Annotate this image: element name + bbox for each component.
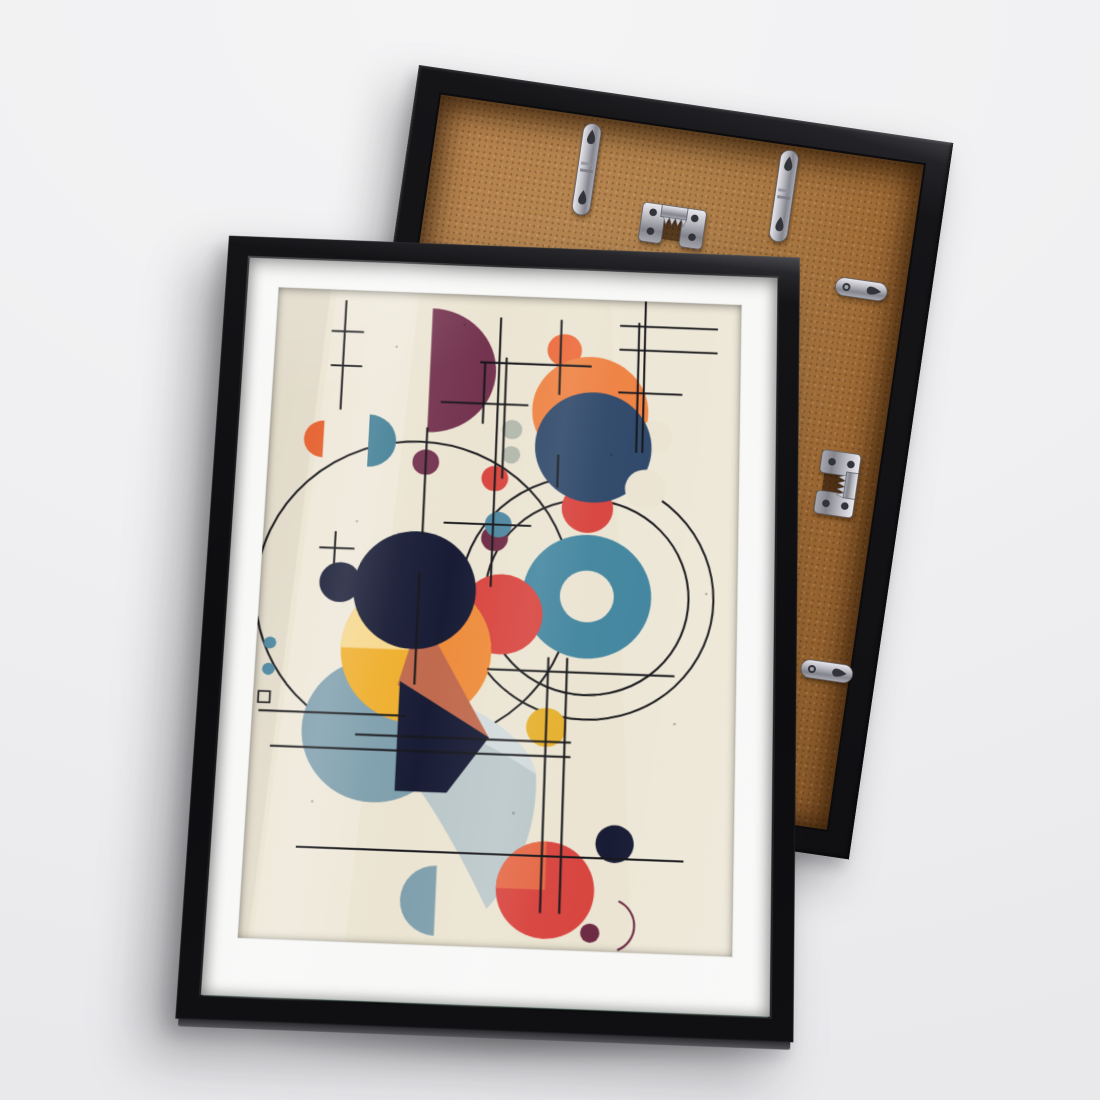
sawtooth-hanger-right [809, 448, 866, 520]
front-frame [175, 236, 800, 1043]
keyhole-strap-right-lower [799, 657, 855, 685]
keyhole-strap-icon [570, 121, 603, 217]
sawtooth-hanger-icon [636, 197, 708, 254]
keyhole-strap-top-left [570, 121, 603, 217]
art-print [238, 287, 742, 956]
abstract-artwork [238, 287, 742, 956]
sawtooth-hanger-top [636, 197, 708, 254]
scene [0, 0, 1100, 1100]
keyhole-strap-icon [833, 275, 889, 303]
keyhole-strap-icon [767, 148, 800, 244]
keyhole-strap-top-right [767, 148, 800, 244]
sawtooth-hanger-icon [809, 448, 866, 520]
keyhole-strap-icon [799, 657, 855, 685]
keyhole-strap-right-upper [833, 275, 889, 303]
